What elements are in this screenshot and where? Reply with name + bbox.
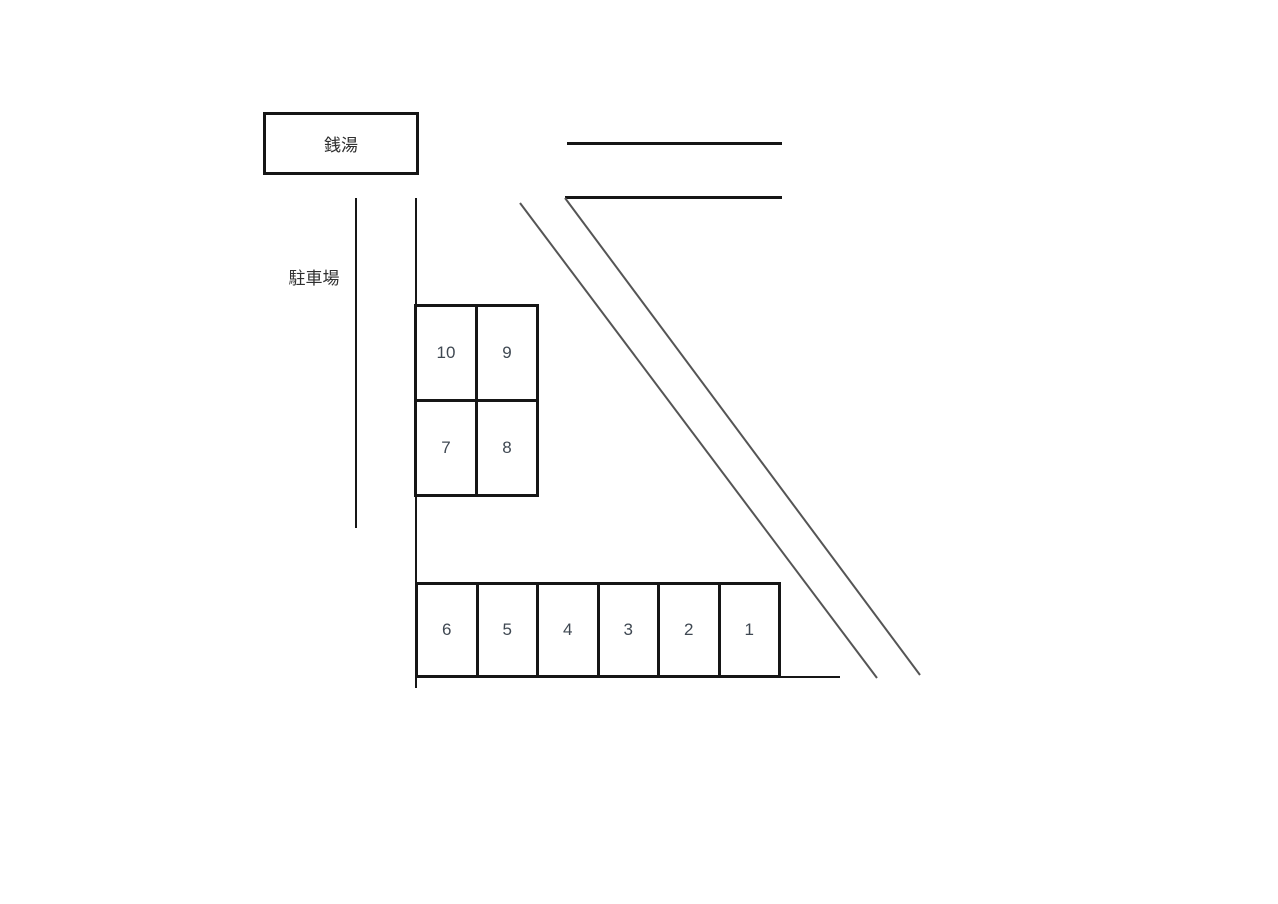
parking-map-diagram: 銭湯 駐車場 10 9 7 8 6 5 4 3 2 1 xyxy=(0,0,1278,904)
parking-space-5: 5 xyxy=(479,585,537,675)
bathhouse-label: 銭湯 xyxy=(324,131,358,156)
bathhouse-box: 銭湯 xyxy=(263,112,419,175)
lower-parking-row: 6 5 4 3 2 1 xyxy=(415,582,781,678)
boundary-line-left xyxy=(355,198,357,528)
parking-lot-label: 駐車場 xyxy=(264,269,364,289)
road-edge-upper-line xyxy=(567,142,782,145)
road-edge-lower-line xyxy=(565,196,782,199)
parking-space-8: 8 xyxy=(478,402,536,494)
parking-space-4: 4 xyxy=(539,585,597,675)
parking-space-3: 3 xyxy=(600,585,658,675)
parking-space-10: 10 xyxy=(417,307,475,399)
parking-space-9: 9 xyxy=(478,307,536,399)
upper-parking-grid: 10 9 7 8 xyxy=(414,304,539,497)
road-diagonals xyxy=(0,0,1278,904)
parking-space-1: 1 xyxy=(721,585,779,675)
parking-space-6: 6 xyxy=(418,585,476,675)
parking-space-2: 2 xyxy=(660,585,718,675)
parking-space-7: 7 xyxy=(417,402,475,494)
